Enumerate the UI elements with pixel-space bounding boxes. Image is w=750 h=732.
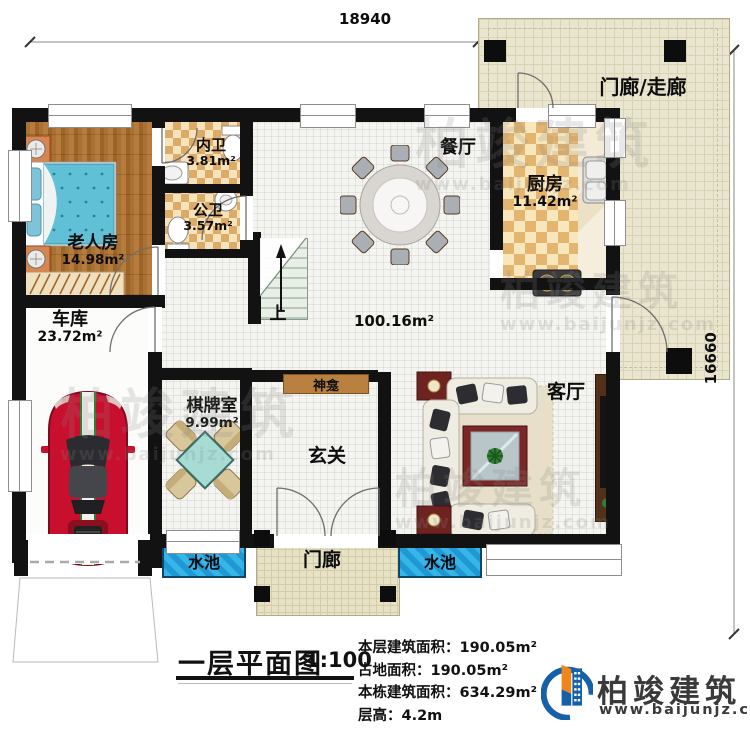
room-label-elder-room: 老人房14.98m²: [62, 234, 125, 268]
title-underline: [176, 676, 354, 680]
door-arc-walkway: [612, 297, 667, 352]
doors-and-marks-layer: [0, 0, 750, 732]
door-arc-foyer-right: [331, 488, 379, 536]
dimension-height: 16660: [703, 332, 720, 384]
door-arc-kitchen-back: [518, 73, 553, 108]
stat-row: 占地面积：190.05m²: [358, 660, 537, 683]
room-label-dining: 餐厅: [440, 138, 476, 158]
stat-row: 层高：4.2m: [358, 705, 537, 728]
building-shape: [572, 668, 582, 705]
room-label-front-porch: 门廊: [303, 550, 341, 571]
floorplan-page: 水池 水池: [0, 0, 750, 732]
area-stats: 本层建筑面积：190.05m² 占地面积：190.05m² 本栋建筑面积：634…: [358, 637, 537, 727]
room-label-living: 客厅: [547, 382, 585, 403]
room-label-public-bath: 公卫3.57m²: [183, 202, 232, 232]
room-label-rear-porch: 门廊/走廊: [599, 76, 686, 98]
stat-row: 本层建筑面积：190.05m²: [358, 637, 537, 660]
room-label-garage: 车库23.72m²: [37, 310, 102, 345]
room-label-kitchen: 厨房11.42m²: [512, 175, 577, 210]
room-label-inner-bath: 内卫3.81m²: [186, 137, 235, 167]
label-hall-area: 100.16m²: [354, 313, 434, 330]
brand-logo-icon: [541, 660, 593, 720]
dimension-width: 18940: [339, 11, 391, 28]
brand-website: www.baijunjz.com: [599, 702, 750, 718]
title-underline-thin: [178, 683, 352, 684]
stat-row: 本栋建筑面积：634.29m²: [358, 682, 537, 705]
door-arc-foyer-left: [277, 488, 325, 536]
building-shape: [562, 665, 572, 694]
room-label-foyer: 玄关: [308, 446, 346, 467]
door-arc-garage: [110, 307, 155, 352]
label-stairs-up: 上: [270, 305, 287, 324]
room-label-chess: 棋牌室9.99m²: [185, 397, 238, 431]
driveway: [13, 578, 158, 662]
